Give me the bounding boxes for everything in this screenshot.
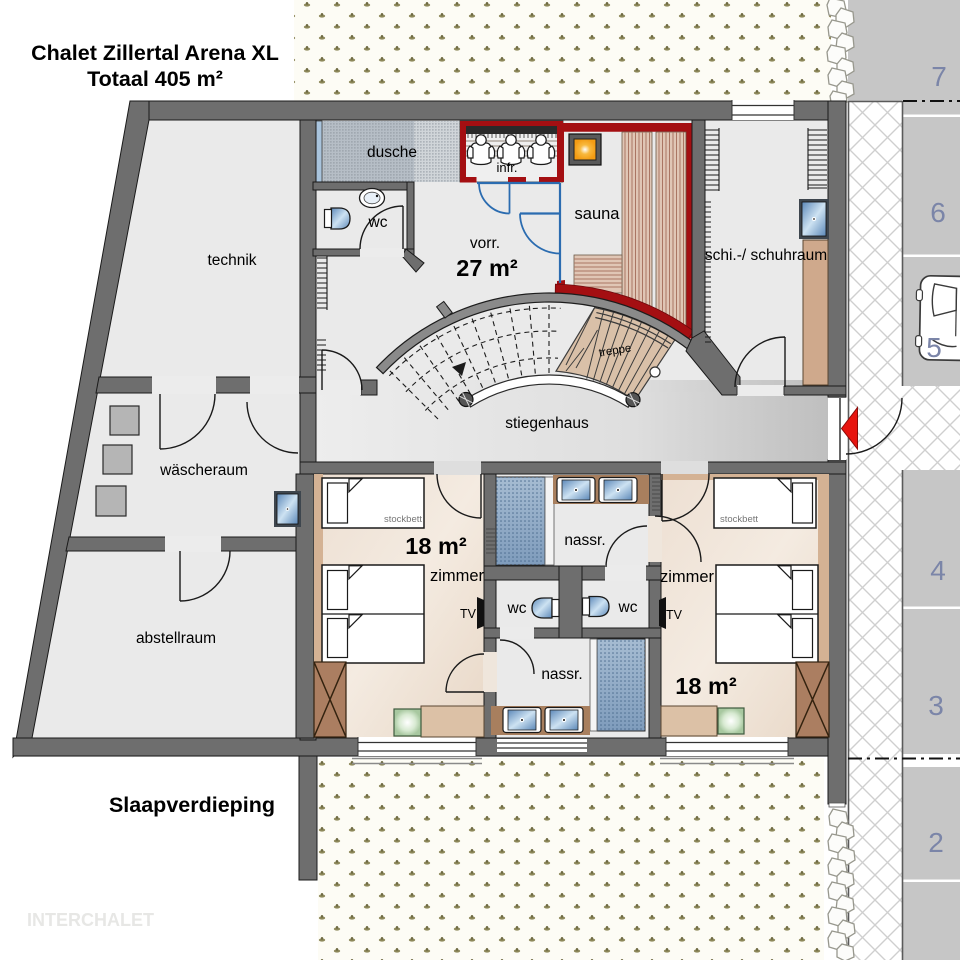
svg-text:technik: technik [207, 252, 256, 269]
svg-text:stockbett: stockbett [384, 514, 422, 525]
svg-text:Totaal 405 m²: Totaal 405 m² [87, 67, 223, 91]
svg-text:4: 4 [930, 555, 946, 586]
svg-text:zimmer: zimmer [660, 568, 715, 586]
svg-text:schi.-/ schuhraum: schi.-/ schuhraum [705, 247, 827, 264]
svg-text:nassr.: nassr. [541, 666, 582, 683]
svg-text:stiegenhaus: stiegenhaus [505, 415, 589, 432]
svg-text:7: 7 [931, 61, 947, 92]
svg-text:sauna: sauna [575, 205, 621, 223]
svg-text:6: 6 [930, 197, 946, 228]
svg-text:abstellraum: abstellraum [136, 630, 216, 647]
svg-text:TV: TV [460, 607, 477, 621]
svg-text:infr.: infr. [497, 160, 518, 175]
svg-text:vorr.: vorr. [470, 235, 500, 252]
svg-text:wc: wc [618, 599, 638, 616]
svg-text:2: 2 [928, 827, 944, 858]
svg-text:wc: wc [507, 600, 527, 617]
svg-text:zimmer: zimmer [430, 567, 485, 585]
svg-text:18 m²: 18 m² [675, 673, 737, 699]
svg-text:Chalet Zillertal Arena XL: Chalet Zillertal Arena XL [31, 41, 279, 65]
svg-text:dusche: dusche [367, 144, 417, 161]
svg-text:nassr.: nassr. [564, 532, 605, 549]
svg-text:stockbett: stockbett [720, 514, 758, 525]
svg-text:18 m²: 18 m² [405, 533, 467, 559]
svg-text:27 m²: 27 m² [456, 255, 518, 281]
svg-text:wc: wc [368, 214, 388, 231]
svg-text:wäscheraum: wäscheraum [159, 462, 248, 479]
svg-text:INTERCHALET: INTERCHALET [27, 910, 154, 930]
svg-text:Slaapverdieping: Slaapverdieping [109, 793, 275, 817]
svg-text:3: 3 [928, 690, 944, 721]
svg-text:TV: TV [666, 608, 683, 622]
svg-text:5: 5 [926, 332, 942, 363]
